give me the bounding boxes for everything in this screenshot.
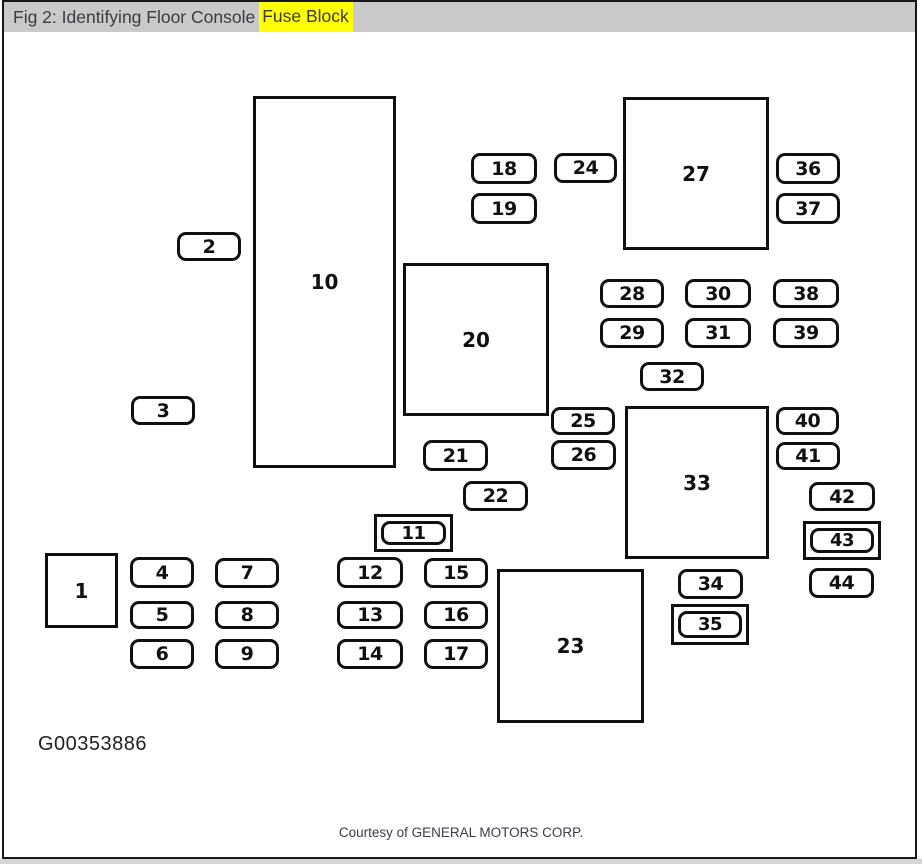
figure-id-code: G00353886 xyxy=(38,733,147,756)
page-background-strip xyxy=(0,859,922,864)
figure-titlebar: Fig 2: Identifying Floor ConsoleFuse Blo… xyxy=(4,2,915,32)
figure-viewer-window: Fig 2: Identifying Floor ConsoleFuse Blo… xyxy=(2,0,917,859)
search-term-highlight: Fuse Block xyxy=(259,2,353,32)
credit-line: Courtesy of GENERAL MOTORS CORP. xyxy=(0,825,922,840)
figure-title: Fig 2: Identifying Floor Console xyxy=(13,7,255,28)
